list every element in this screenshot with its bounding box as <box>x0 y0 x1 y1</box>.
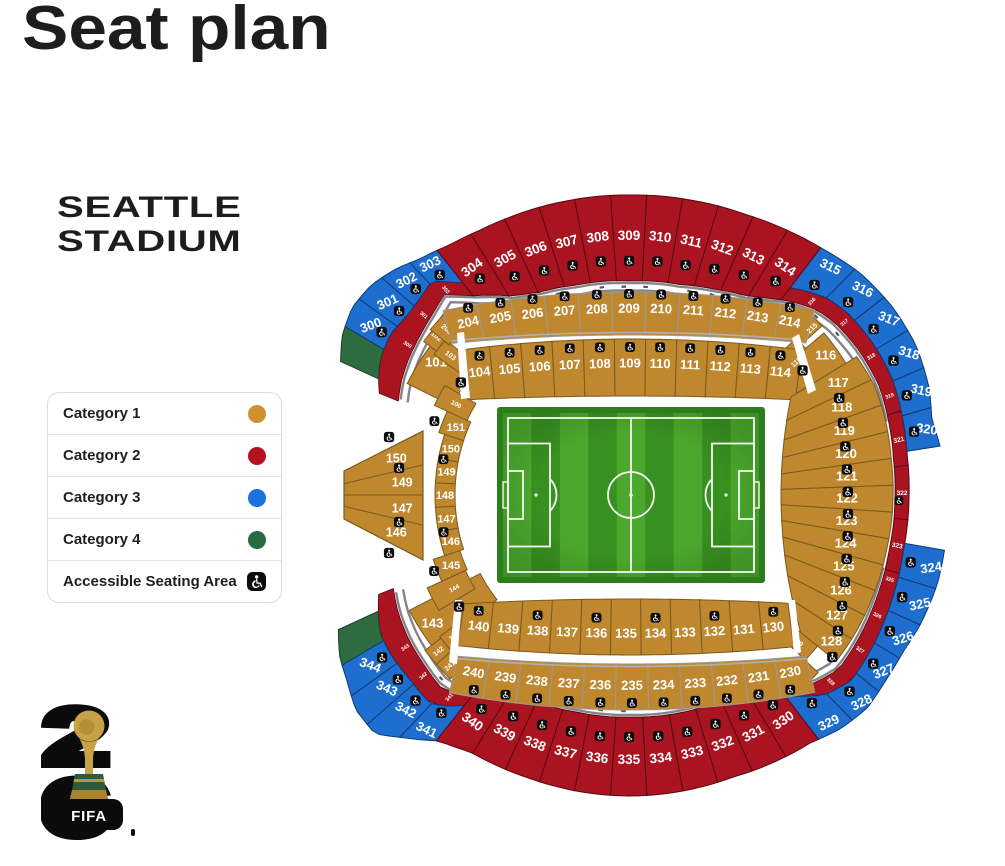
svg-text:211: 211 <box>682 302 704 318</box>
svg-text:148: 148 <box>436 490 454 502</box>
svg-text:149: 149 <box>437 467 455 479</box>
svg-text:335: 335 <box>618 752 641 767</box>
svg-text:138: 138 <box>526 622 549 638</box>
svg-text:109: 109 <box>619 356 641 371</box>
svg-text:234: 234 <box>653 677 676 693</box>
svg-text:114: 114 <box>769 363 792 380</box>
svg-text:206: 206 <box>521 305 544 322</box>
svg-text:207: 207 <box>553 302 576 319</box>
svg-text:322: 322 <box>897 490 908 497</box>
svg-text:210: 210 <box>650 301 672 317</box>
svg-text:113: 113 <box>739 360 761 377</box>
svg-text:150: 150 <box>442 444 460 456</box>
svg-text:134: 134 <box>645 625 668 640</box>
svg-text:238: 238 <box>525 672 548 689</box>
svg-text:235: 235 <box>621 678 643 693</box>
svg-text:310: 310 <box>648 228 672 245</box>
svg-text:137: 137 <box>556 624 578 640</box>
svg-text:236: 236 <box>589 677 611 693</box>
svg-text:133: 133 <box>674 624 696 640</box>
svg-text:149: 149 <box>392 476 413 490</box>
svg-text:309: 309 <box>618 228 641 243</box>
svg-text:130: 130 <box>762 618 785 635</box>
svg-text:107: 107 <box>559 357 581 373</box>
svg-text:146: 146 <box>442 536 460 548</box>
svg-text:140: 140 <box>467 617 490 635</box>
svg-text:145: 145 <box>442 560 460 572</box>
svg-text:108: 108 <box>589 356 611 371</box>
svg-text:334: 334 <box>649 749 674 766</box>
svg-text:112: 112 <box>709 358 731 374</box>
svg-text:105: 105 <box>498 360 521 377</box>
svg-text:110: 110 <box>649 356 670 371</box>
svg-text:147: 147 <box>392 501 413 515</box>
svg-text:136: 136 <box>585 625 607 640</box>
svg-text:106: 106 <box>528 358 551 374</box>
svg-text:131: 131 <box>732 621 755 638</box>
svg-text:116: 116 <box>815 348 836 363</box>
svg-text:146: 146 <box>386 526 407 540</box>
svg-text:143: 143 <box>422 615 444 630</box>
svg-text:308: 308 <box>586 228 611 246</box>
svg-text:212: 212 <box>714 304 737 321</box>
svg-text:336: 336 <box>585 749 610 767</box>
svg-text:208: 208 <box>586 301 608 317</box>
svg-text:232: 232 <box>715 672 738 689</box>
svg-text:233: 233 <box>684 675 707 692</box>
svg-text:117: 117 <box>828 375 849 390</box>
svg-text:139: 139 <box>497 620 520 637</box>
svg-text:132: 132 <box>703 623 726 639</box>
svg-text:209: 209 <box>618 301 640 316</box>
svg-text:111: 111 <box>680 357 701 373</box>
svg-text:237: 237 <box>557 675 580 691</box>
svg-text:135: 135 <box>615 626 637 641</box>
svg-text:147: 147 <box>437 513 455 525</box>
svg-text:151: 151 <box>447 422 465 434</box>
svg-text:104: 104 <box>468 363 492 380</box>
svg-text:239: 239 <box>494 668 518 686</box>
